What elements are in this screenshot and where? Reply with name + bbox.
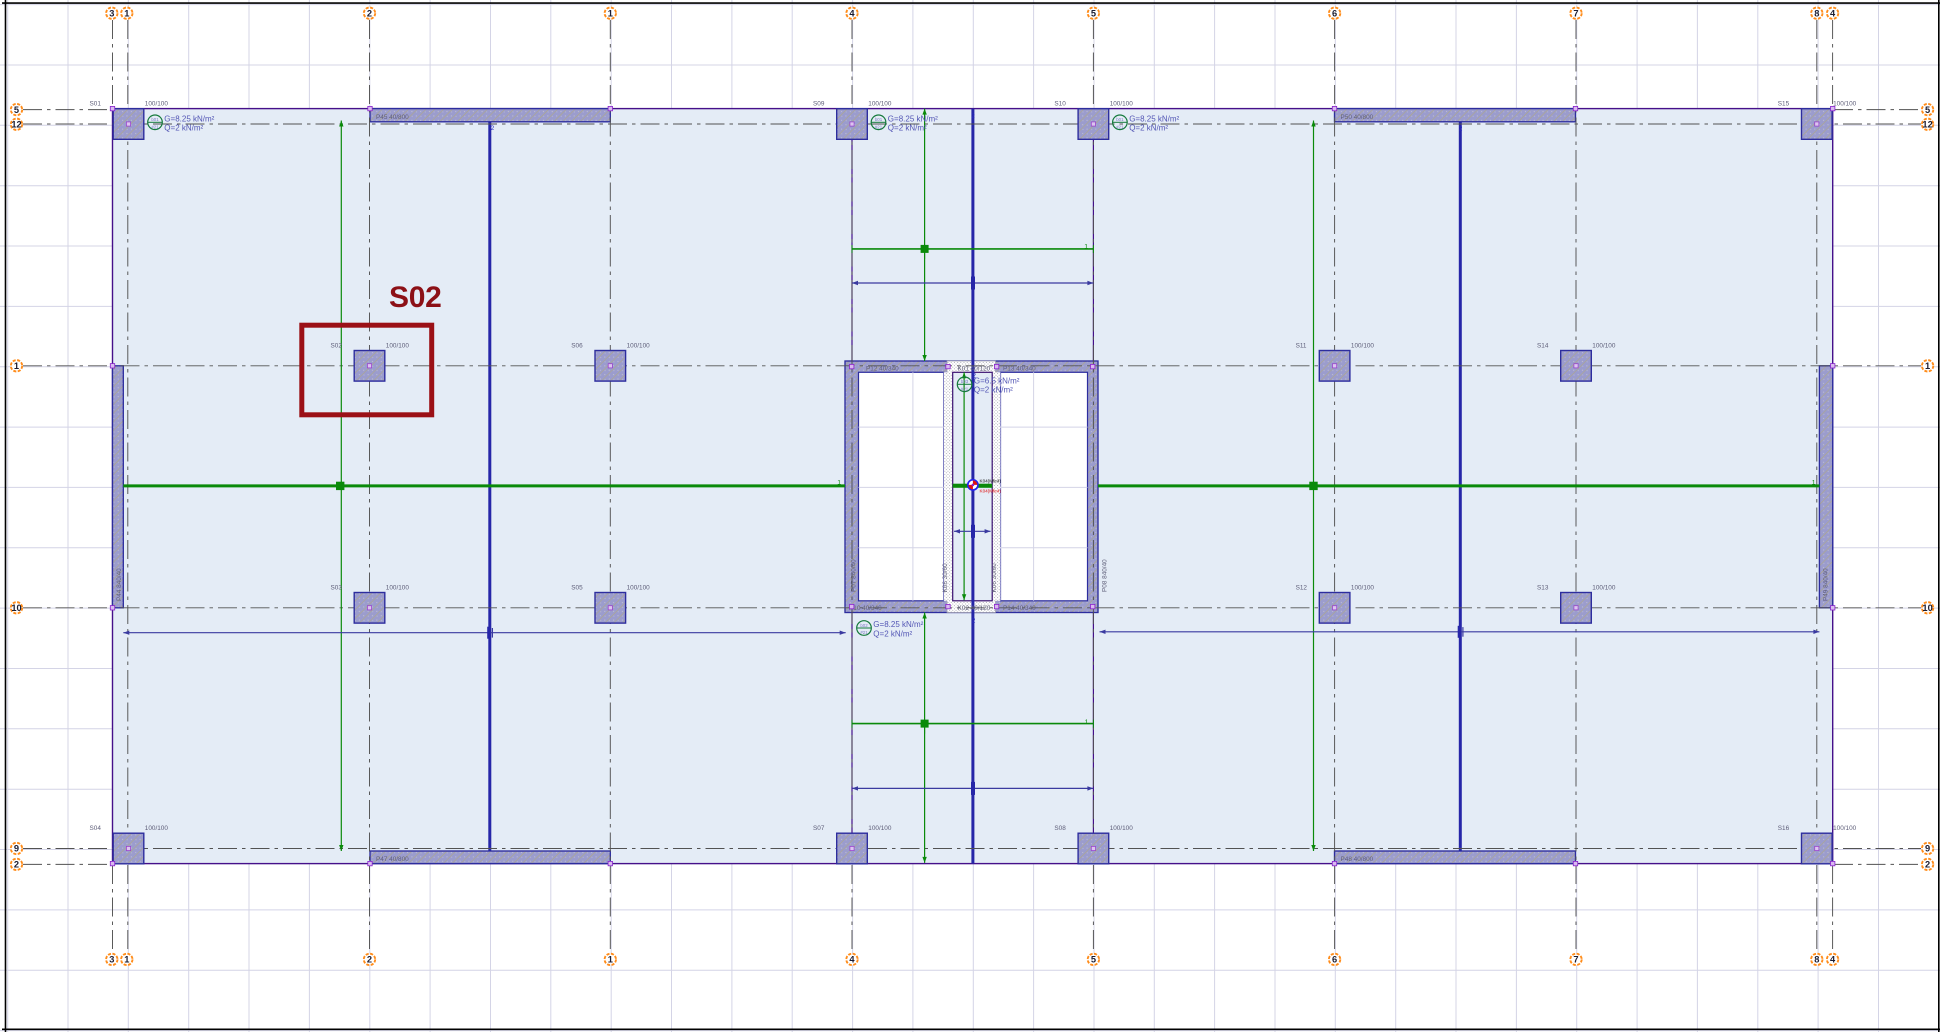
svg-text:S06: S06 — [571, 342, 583, 349]
svg-text:5: 5 — [1925, 105, 1930, 115]
svg-text:1: 1 — [1925, 361, 1930, 371]
svg-text:K04(Mfe4): K04(Mfe4) — [980, 488, 1002, 493]
svg-text:100/100: 100/100 — [386, 342, 410, 349]
svg-text:100/100: 100/100 — [868, 101, 892, 108]
svg-text:P44 840/40: P44 840/40 — [116, 568, 123, 601]
svg-text:2: 2 — [367, 955, 372, 965]
svg-text:6: 6 — [1332, 955, 1337, 965]
svg-text:6: 6 — [1332, 8, 1337, 18]
svg-text:100/100: 100/100 — [1351, 584, 1375, 591]
svg-text:K06 30/60: K06 30/60 — [942, 563, 949, 593]
svg-text:1: 1 — [14, 361, 19, 371]
svg-text:#21: #21 — [860, 630, 868, 635]
svg-text:1: 1 — [1084, 243, 1088, 250]
svg-text:100/100: 100/100 — [868, 825, 892, 832]
svg-text:P48 40/800: P48 40/800 — [1341, 856, 1374, 863]
svg-text:P50 40/800: P50 40/800 — [1341, 114, 1374, 121]
svg-text:G=6.5 kN/m²: G=6.5 kN/m² — [974, 376, 1020, 385]
svg-text:4: 4 — [1830, 8, 1836, 18]
svg-text:P12 40/340: P12 40/340 — [866, 365, 899, 372]
svg-text:S03: S03 — [331, 584, 343, 591]
svg-text:10: 10 — [1922, 603, 1932, 613]
svg-text:4: 4 — [849, 955, 855, 965]
svg-text:8: 8 — [1814, 955, 1819, 965]
svg-text:K01 40/120: K01 40/120 — [958, 365, 991, 372]
svg-text:1: 1 — [1812, 480, 1816, 487]
svg-text:S11: S11 — [1296, 342, 1307, 349]
svg-text:4: 4 — [1830, 955, 1836, 965]
svg-text:100/100: 100/100 — [386, 584, 410, 591]
svg-text:b01: b01 — [1116, 117, 1124, 122]
svg-text:S12: S12 — [1296, 584, 1308, 591]
svg-text:2: 2 — [971, 113, 975, 120]
svg-text:#21: #21 — [151, 125, 159, 130]
svg-text:G=8.25 kN/m²: G=8.25 kN/m² — [1129, 114, 1179, 123]
svg-text:2: 2 — [1925, 860, 1930, 870]
svg-text:P07 840/40: P07 840/40 — [851, 559, 858, 592]
svg-text:1: 1 — [124, 8, 129, 18]
svg-text:2: 2 — [491, 125, 495, 132]
svg-text:1: 1 — [608, 8, 613, 18]
svg-text:S07: S07 — [813, 825, 825, 832]
svg-text:S08: S08 — [1054, 825, 1066, 832]
svg-text:100/100: 100/100 — [627, 342, 651, 349]
svg-text:P13 40/340: P13 40/340 — [1003, 365, 1036, 372]
svg-text:100/100: 100/100 — [1833, 101, 1857, 108]
svg-text:2: 2 — [972, 618, 976, 625]
svg-text:5: 5 — [1091, 955, 1096, 965]
svg-text:10: 10 — [11, 603, 21, 613]
svg-text:100/100: 100/100 — [627, 584, 651, 591]
svg-text:2: 2 — [14, 860, 19, 870]
svg-text:P14 40/340: P14 40/340 — [1003, 605, 1036, 612]
svg-text:100/100: 100/100 — [1110, 101, 1134, 108]
svg-text:#21: #21 — [875, 125, 883, 130]
svg-text:S16: S16 — [1778, 825, 1790, 832]
svg-text:b03: b03 — [961, 379, 969, 384]
svg-text:Q=2 kN/m²: Q=2 kN/m² — [974, 386, 1013, 395]
svg-text:9: 9 — [14, 844, 19, 854]
svg-text:K02 40/120: K02 40/120 — [958, 605, 991, 612]
svg-text:K06 30/60: K06 30/60 — [991, 563, 998, 593]
svg-text:Q=2 kN/m²: Q=2 kN/m² — [873, 629, 912, 638]
svg-text:b01: b01 — [875, 117, 883, 122]
svg-text:4: 4 — [849, 8, 855, 18]
svg-text:Q=2 kN/m²: Q=2 kN/m² — [888, 124, 927, 133]
svg-text:1: 1 — [837, 480, 841, 487]
svg-text:S13: S13 — [1537, 584, 1549, 591]
svg-text:P08 840/40: P08 840/40 — [1101, 559, 1108, 592]
svg-text:100/100: 100/100 — [145, 825, 169, 832]
svg-text:7: 7 — [1573, 8, 1578, 18]
svg-text:1: 1 — [124, 955, 129, 965]
svg-text:P45 40/800: P45 40/800 — [376, 114, 409, 121]
svg-text:#21: #21 — [1116, 125, 1124, 130]
svg-text:12: 12 — [1922, 120, 1932, 130]
svg-text:G=8.25 kN/m²: G=8.25 kN/m² — [164, 114, 214, 123]
svg-text:S04: S04 — [90, 825, 102, 832]
svg-text:100/100: 100/100 — [1110, 825, 1134, 832]
svg-text:G=8.25 kN/m²: G=8.25 kN/m² — [888, 114, 938, 123]
svg-text:S14: S14 — [1537, 342, 1549, 349]
svg-text:7: 7 — [1573, 955, 1578, 965]
svg-text:S01: S01 — [90, 101, 102, 108]
svg-text:100/100: 100/100 — [1592, 342, 1616, 349]
svg-text:3: 3 — [109, 8, 114, 18]
svg-text:9: 9 — [1925, 844, 1930, 854]
svg-text:1: 1 — [608, 955, 613, 965]
svg-text:K04(Mfe4): K04(Mfe4) — [980, 479, 1002, 484]
svg-text:100/100: 100/100 — [1592, 584, 1616, 591]
svg-text:2: 2 — [1459, 126, 1463, 133]
svg-text:1: 1 — [1085, 719, 1089, 726]
svg-text:S05: S05 — [571, 584, 583, 591]
svg-text:100/100: 100/100 — [1351, 342, 1375, 349]
svg-text:2: 2 — [367, 8, 372, 18]
svg-text:b01: b01 — [151, 117, 159, 122]
svg-text:S09: S09 — [813, 101, 825, 108]
svg-text:S10: S10 — [1054, 101, 1066, 108]
svg-text:5: 5 — [1091, 8, 1096, 18]
svg-text:#21: #21 — [961, 387, 969, 392]
svg-text:8: 8 — [1814, 8, 1819, 18]
svg-text:P47 40/800: P47 40/800 — [376, 856, 409, 863]
svg-text:3: 3 — [109, 955, 114, 965]
svg-text:Q=2 kN/m²: Q=2 kN/m² — [164, 124, 203, 133]
svg-text:P49 840/40: P49 840/40 — [1823, 568, 1830, 601]
svg-text:100/100: 100/100 — [145, 101, 169, 108]
svg-text:12: 12 — [11, 120, 21, 130]
svg-text:b02: b02 — [860, 623, 868, 628]
svg-text:S15: S15 — [1778, 101, 1790, 108]
svg-text:S02: S02 — [331, 342, 343, 349]
svg-text:G=8.25 kN/m²: G=8.25 kN/m² — [873, 620, 923, 629]
svg-text:100/100: 100/100 — [1833, 825, 1857, 832]
svg-text:5: 5 — [14, 105, 19, 115]
svg-text:Q=2 kN/m²: Q=2 kN/m² — [1129, 124, 1168, 133]
svg-text:S02: S02 — [389, 281, 441, 314]
